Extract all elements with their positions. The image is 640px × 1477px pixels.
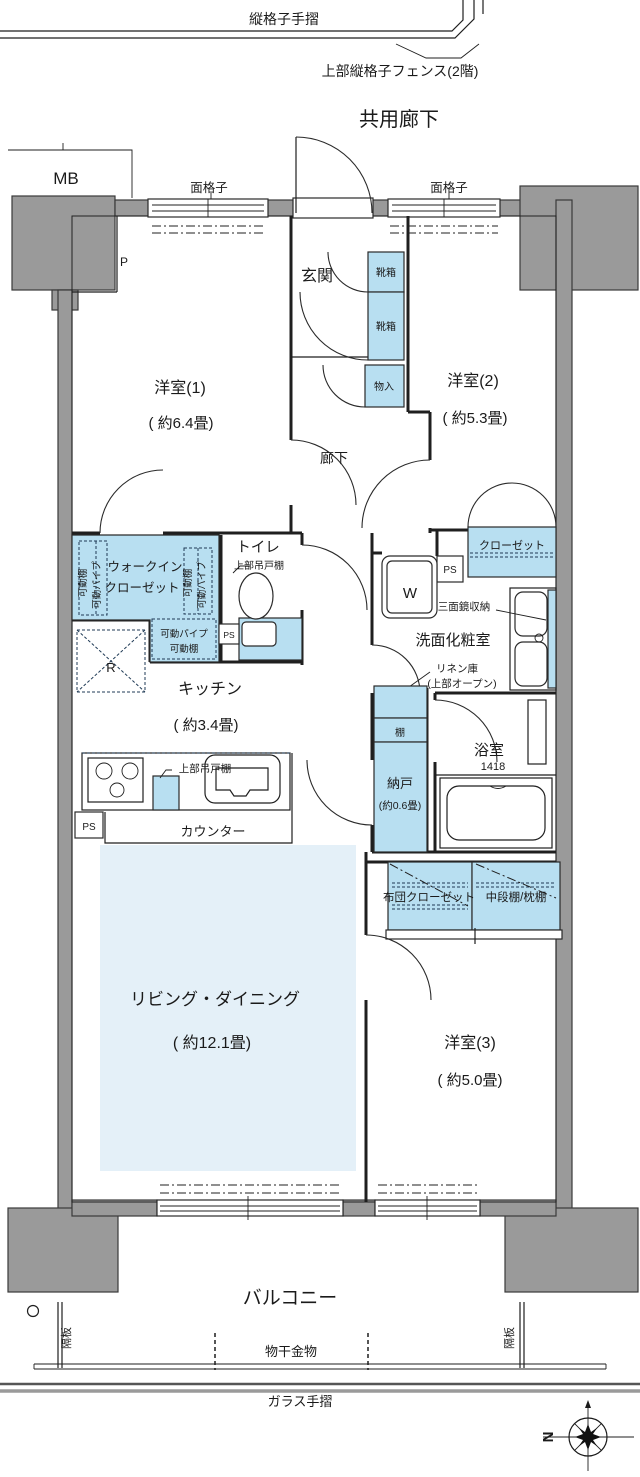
toilet-bowl (239, 573, 273, 619)
grille-left-label: 面格子 (190, 180, 228, 195)
hall-storage-label: 物入 (374, 380, 394, 393)
living-size: ( 約12.1畳) (173, 1034, 251, 1052)
bath-size: 1418 (481, 761, 505, 773)
wic-shelf-bottom-label: 可動棚 (170, 643, 199, 655)
window-grille-right (388, 193, 500, 233)
living-label: リビング・ダイニング (130, 990, 300, 1009)
linen-label-2: (上部オープン) (427, 677, 496, 690)
shoebox-lower-label: 靴箱 (376, 320, 396, 333)
ps-toilet-label: PS (223, 630, 235, 640)
partition-left-label: 隔板 (59, 1327, 73, 1349)
closet2-label: クローゼット (479, 539, 545, 552)
nando (374, 742, 427, 852)
east-wall (556, 200, 572, 1216)
mirror-note-label: 三面鏡収納 (438, 600, 491, 613)
washer-label: W (403, 585, 418, 602)
nando-column (307, 686, 427, 852)
kitchen-size: ( 約3.4畳) (173, 717, 238, 734)
wic-label-1: ウォークイン (107, 560, 182, 574)
common-corridor-label: 共用廊下 (359, 108, 439, 131)
futon-closet-track (386, 930, 562, 939)
wic-pipe-right-label: 可動パイプ (197, 561, 208, 609)
bathroom (435, 700, 556, 848)
room3-door-arc (366, 935, 431, 1000)
genkan-label: 玄関 (301, 267, 333, 285)
hallway-label: 廊下 (320, 450, 348, 466)
balcony (0, 1302, 640, 1391)
nando-door-arc (307, 760, 372, 825)
counter-label: カウンター (180, 824, 245, 839)
se-column (505, 1208, 638, 1292)
nando-size: (約0.6畳) (379, 799, 422, 812)
kitchen-cabinet-label: 上部吊戸棚 (179, 762, 232, 775)
room2-closet (468, 483, 556, 577)
bath-label: 浴室 (474, 742, 504, 759)
ps-mid-label: PS (443, 565, 457, 576)
wic-shelf-left-label: 可動棚 (77, 569, 89, 598)
nando-label: 納戸 (387, 776, 413, 791)
ne-column (520, 186, 638, 290)
floor-plan-drawing: 縦格子手摺 上部縦格子フェンス(2階) 共用廊下 MB P 面格子 面格子 (0, 0, 640, 1477)
balcony-label: バルコニー (243, 1288, 338, 1309)
vanity-mirror-strip (548, 590, 556, 688)
glass-rail-label: ガラス手摺 (268, 1394, 333, 1409)
shoebox-upper-label: 靴箱 (376, 266, 396, 279)
wic-pipe-bottom-label: 可動パイプ (160, 629, 208, 640)
floor-plan: 縦格子手摺 上部縦格子フェンス(2階) 共用廊下 MB P 面格子 面格子 (0, 0, 640, 1477)
room3-label: 洋室(3) (444, 1034, 496, 1052)
partition-right-label: 隔板 (502, 1327, 516, 1349)
toilet-cabinet-label: 上部吊戸棚 (234, 559, 284, 572)
room1-size: ( 約6.4畳) (148, 415, 213, 432)
bathtub (447, 786, 545, 840)
west-wall (58, 290, 72, 1216)
ps-kitchen-label: PS (82, 822, 96, 833)
nando-shelf-label: 棚 (395, 726, 405, 739)
p-label: P (120, 255, 128, 269)
compass-rose (575, 1424, 601, 1450)
fridge-label: R (106, 660, 115, 675)
room2-door-arc (362, 460, 430, 528)
mb-label: MB (53, 169, 79, 188)
partition-right-line (520, 1302, 524, 1368)
window-grille-left (148, 193, 268, 233)
wic-shelf-right-label: 可動棚 (182, 569, 194, 598)
fence-callout-bracket (396, 44, 479, 58)
compass-north-label: N (540, 1432, 557, 1443)
washroom-label: 洗面化粧室 (415, 632, 490, 649)
futon-left-label: 布団クローゼット (383, 891, 475, 904)
wic-pipe-left-label: 可動パイプ (92, 561, 103, 609)
balcony-windows (157, 1185, 480, 1220)
entrance-door (293, 137, 373, 218)
toilet-label: トイレ (236, 540, 280, 556)
room3-size: ( 約5.0畳) (437, 1072, 502, 1089)
kitchen-label: キッチン (178, 681, 242, 698)
drain-circle (28, 1306, 39, 1317)
mb-block (12, 196, 115, 290)
vertical-rail-label: 縦格子手摺 (249, 11, 319, 27)
room2-label: 洋室(2) (447, 372, 499, 390)
room2-size: ( 約5.3畳) (442, 410, 507, 427)
linen-cabinet (374, 686, 427, 718)
sw-column (8, 1208, 118, 1292)
room1-label: 洋室(1) (154, 379, 206, 397)
grille-right-label: 面格子 (430, 180, 468, 195)
futon-right-label: 中段棚/枕棚 (486, 890, 547, 904)
kitchen-upper-cabinet (153, 776, 179, 810)
laundry-fitting-label: 物干金物 (265, 1344, 317, 1359)
wic-label-2: クローゼット (104, 581, 179, 595)
linen-label-1: リネン庫 (436, 662, 478, 675)
toilet-door-arc (302, 545, 367, 610)
upper-fence-label: 上部縦格子フェンス(2階) (322, 63, 479, 79)
